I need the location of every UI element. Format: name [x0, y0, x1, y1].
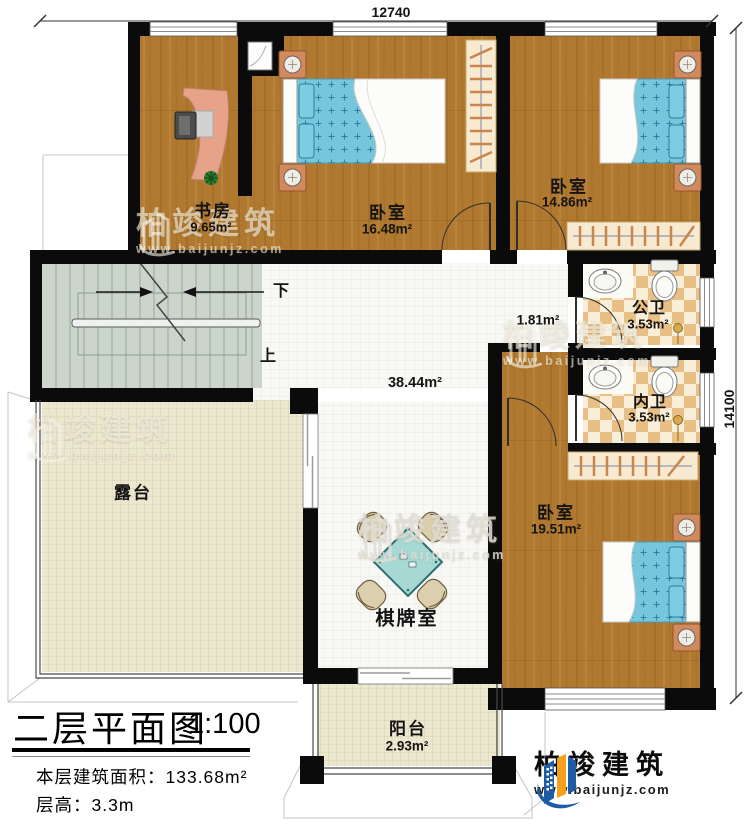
title-underline — [12, 748, 250, 752]
room-area-balcony: 2.93m² — [386, 739, 429, 753]
study-door-gap — [238, 196, 252, 250]
wall-niche — [248, 42, 272, 70]
room-area-study: 9.65m² — [190, 221, 231, 234]
room-label-game-room: 棋牌室 — [375, 610, 438, 629]
sliding-door-balcony — [358, 668, 453, 684]
room-area-ensuite-bath: 3.53m² — [628, 411, 669, 424]
room-label-bedroom-top: 卧室 — [369, 205, 407, 222]
area-game-room: 38.44m² — [388, 376, 442, 391]
balcony-post-right — [492, 756, 516, 784]
title-underline-thin — [12, 756, 250, 757]
window-public-bath — [700, 278, 714, 327]
room-area-public-bath: 3.53m² — [627, 318, 668, 331]
window-bedroom-bottom — [545, 688, 665, 710]
room-label-balcony: 阳台 — [389, 721, 427, 738]
room-label-public-bath: 公卫 — [632, 301, 666, 317]
window-bedroom-right-top — [545, 22, 657, 36]
stair-handrail — [72, 319, 260, 327]
stair-up-label: 上 — [260, 349, 276, 365]
area-corridor: 1.81m² — [517, 313, 560, 327]
floorplan-page: { "plan": { "dimension_top": "12740", "d… — [0, 0, 750, 826]
dimension-top-label: 12740 — [372, 5, 411, 19]
window-ensuite-bath — [700, 373, 714, 427]
stair-down-label: 下 — [273, 284, 289, 300]
floor-drain-icon — [674, 324, 683, 333]
corridor-wood-floor — [502, 352, 568, 455]
room-area-bedroom-top: 16.48m² — [362, 222, 412, 236]
hall-floor-upper — [262, 263, 488, 388]
room-area-bedroom-right: 14.86m² — [542, 195, 592, 209]
room-label-bedroom-right: 卧室 — [550, 179, 588, 196]
corridor-181-floor — [488, 264, 568, 343]
drawing-scale: 1:100 — [188, 708, 261, 741]
floor-drain-icon — [674, 416, 683, 425]
toilet-tank — [651, 260, 678, 271]
window-bedroom-top — [333, 22, 447, 36]
room-area-bedroom-bottom: 19.51m² — [531, 522, 581, 536]
room-label-terrace: 露台 — [114, 485, 152, 502]
floor-area-text: 本层建筑面积：133.68m² — [36, 764, 247, 789]
building-logo-icon — [534, 752, 590, 812]
wardrobe-bedroom-top — [466, 40, 496, 172]
room-label-study: 书房 — [194, 203, 232, 220]
toilet-tank — [651, 356, 678, 367]
window-study-top — [150, 22, 237, 36]
room-label-bedroom-bottom: 卧室 — [537, 505, 575, 522]
page-title: 二层平面图 — [13, 700, 208, 752]
balcony-post-left — [300, 756, 324, 784]
terrace-floor — [42, 400, 303, 672]
floor-height-text: 层高：3.3m — [36, 792, 134, 817]
terrace-doorway-floor — [253, 388, 290, 402]
sliding-door-terrace — [303, 414, 318, 508]
wardrobe-bedroom-bottom — [568, 452, 698, 480]
brand-logo: 柏竣建筑 www.baijunjz.com — [534, 752, 670, 797]
wardrobe-bedroom-right — [567, 222, 700, 250]
dimension-right-label: 14100 — [722, 390, 736, 429]
